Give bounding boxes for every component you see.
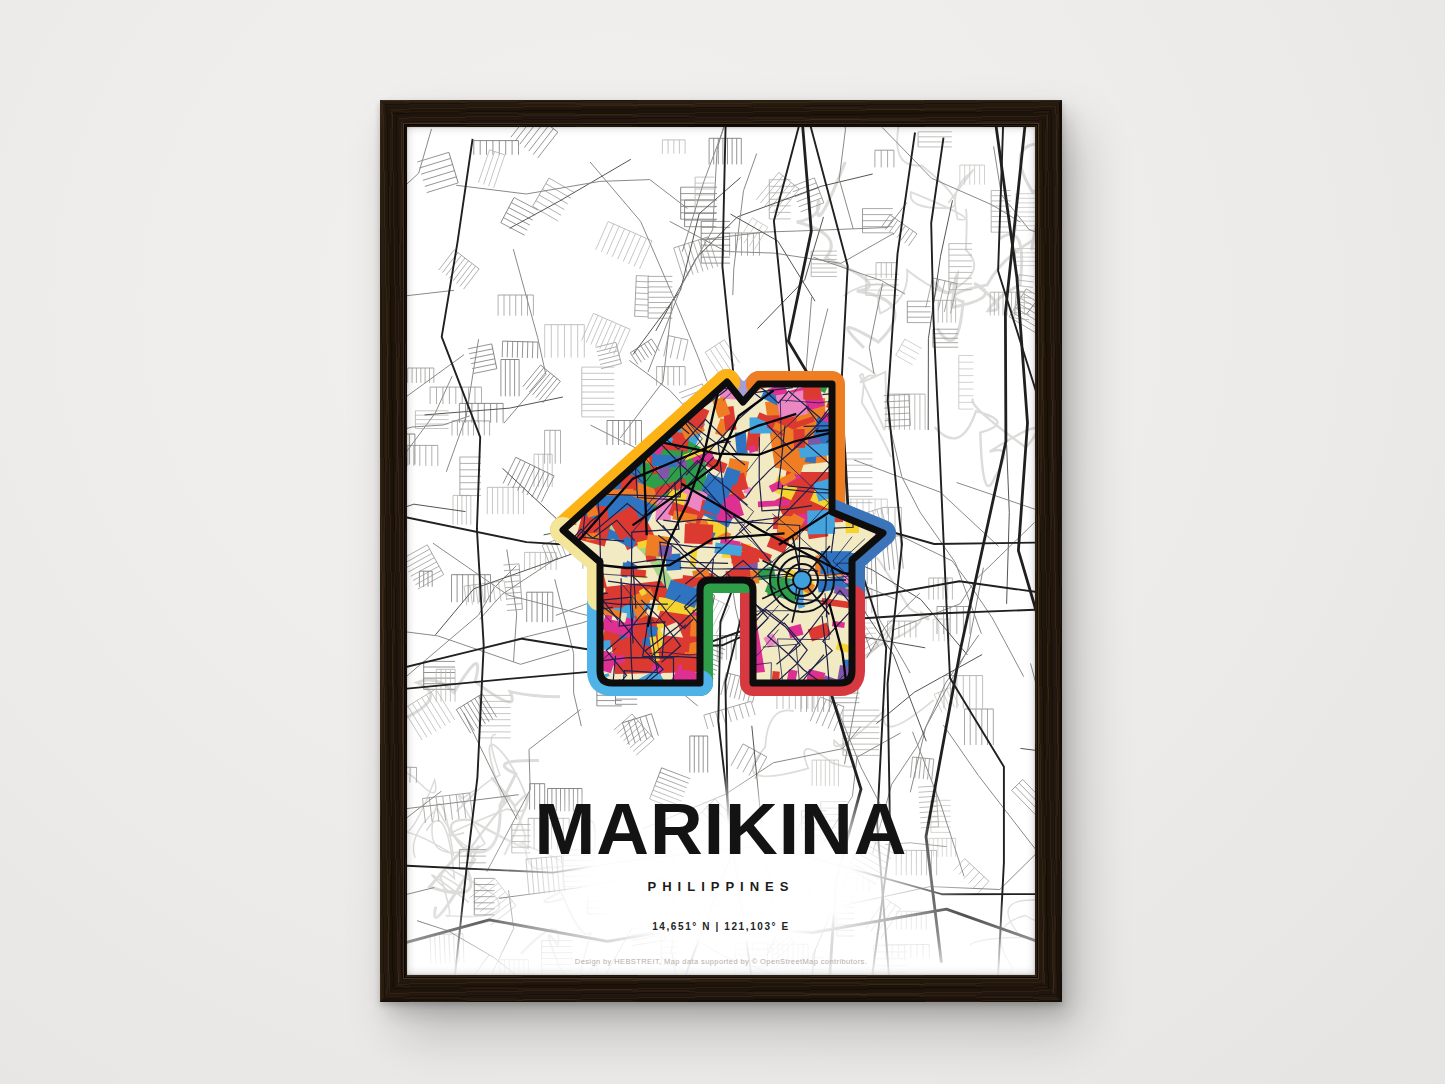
city-title: MARIKINA: [407, 795, 1035, 862]
frame-wood-left: [380, 100, 407, 1002]
coordinates-label: 14,651° N | 121,103° E: [407, 921, 1035, 932]
scene: { "poster": { "title": "MARIKINA", "subt…: [0, 0, 1445, 1084]
credit-line: Design by HEBSTREIT, Map data supported …: [407, 957, 1035, 966]
wall-background: MARIKINA PHILIPPINES 14,651° N | 121,103…: [0, 0, 1445, 1084]
country-label: PHILIPPINES: [407, 879, 1035, 894]
poster-frame: MARIKINA PHILIPPINES 14,651° N | 121,103…: [380, 100, 1062, 1002]
frame-wood-top: [380, 100, 1062, 127]
frame-wood-right: [1035, 100, 1062, 1002]
title-block: MARIKINA PHILIPPINES 14,651° N | 121,103…: [407, 795, 1035, 966]
map-poster: MARIKINA PHILIPPINES 14,651° N | 121,103…: [407, 127, 1035, 975]
house-map-icon: [555, 372, 895, 698]
frame-wood-bottom: [380, 975, 1062, 1002]
